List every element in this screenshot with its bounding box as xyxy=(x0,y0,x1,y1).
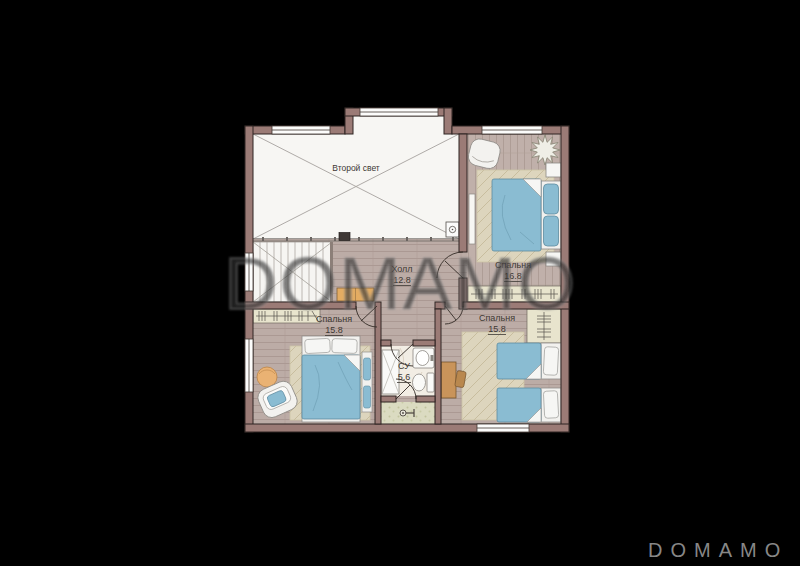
window xyxy=(272,126,330,134)
double-bed xyxy=(302,336,360,422)
wall xyxy=(416,396,435,402)
wall xyxy=(459,134,467,252)
label-second-light: Второй свет xyxy=(332,163,380,173)
pouf xyxy=(257,367,277,387)
tv-on-railing xyxy=(339,233,350,241)
wall xyxy=(413,340,435,346)
svg-text:СУ: СУ xyxy=(398,361,410,371)
double-bed xyxy=(492,179,561,251)
single-bed xyxy=(497,388,561,422)
screenshot-canvas: Второй свет Холл 12.8 Спальня 16.8 Спаль… xyxy=(0,0,800,566)
toilet xyxy=(413,373,435,392)
wall xyxy=(435,309,441,424)
void-bump-floor xyxy=(353,116,444,134)
svg-text:5.6: 5.6 xyxy=(398,372,411,382)
label-bathroom: СУ 5.6 xyxy=(397,361,411,383)
wall xyxy=(444,108,452,134)
window xyxy=(245,339,253,392)
shower xyxy=(382,350,399,394)
sink xyxy=(413,348,434,368)
bedside-bench xyxy=(362,352,372,412)
svg-text:15.8: 15.8 xyxy=(488,324,506,334)
window xyxy=(482,126,542,134)
wall xyxy=(381,396,396,402)
svg-text:15.8: 15.8 xyxy=(325,325,343,335)
brand-logo: DOMAMO xyxy=(648,539,788,561)
window xyxy=(477,424,529,432)
dresser xyxy=(469,194,475,244)
window xyxy=(360,108,438,116)
wall xyxy=(381,340,391,346)
single-bed xyxy=(497,343,561,379)
nightstand xyxy=(546,163,561,177)
watermark-text: DOMAMO xyxy=(224,242,577,325)
floor-plan: Второй свет Холл 12.8 Спальня 16.8 Спаль… xyxy=(0,0,800,566)
